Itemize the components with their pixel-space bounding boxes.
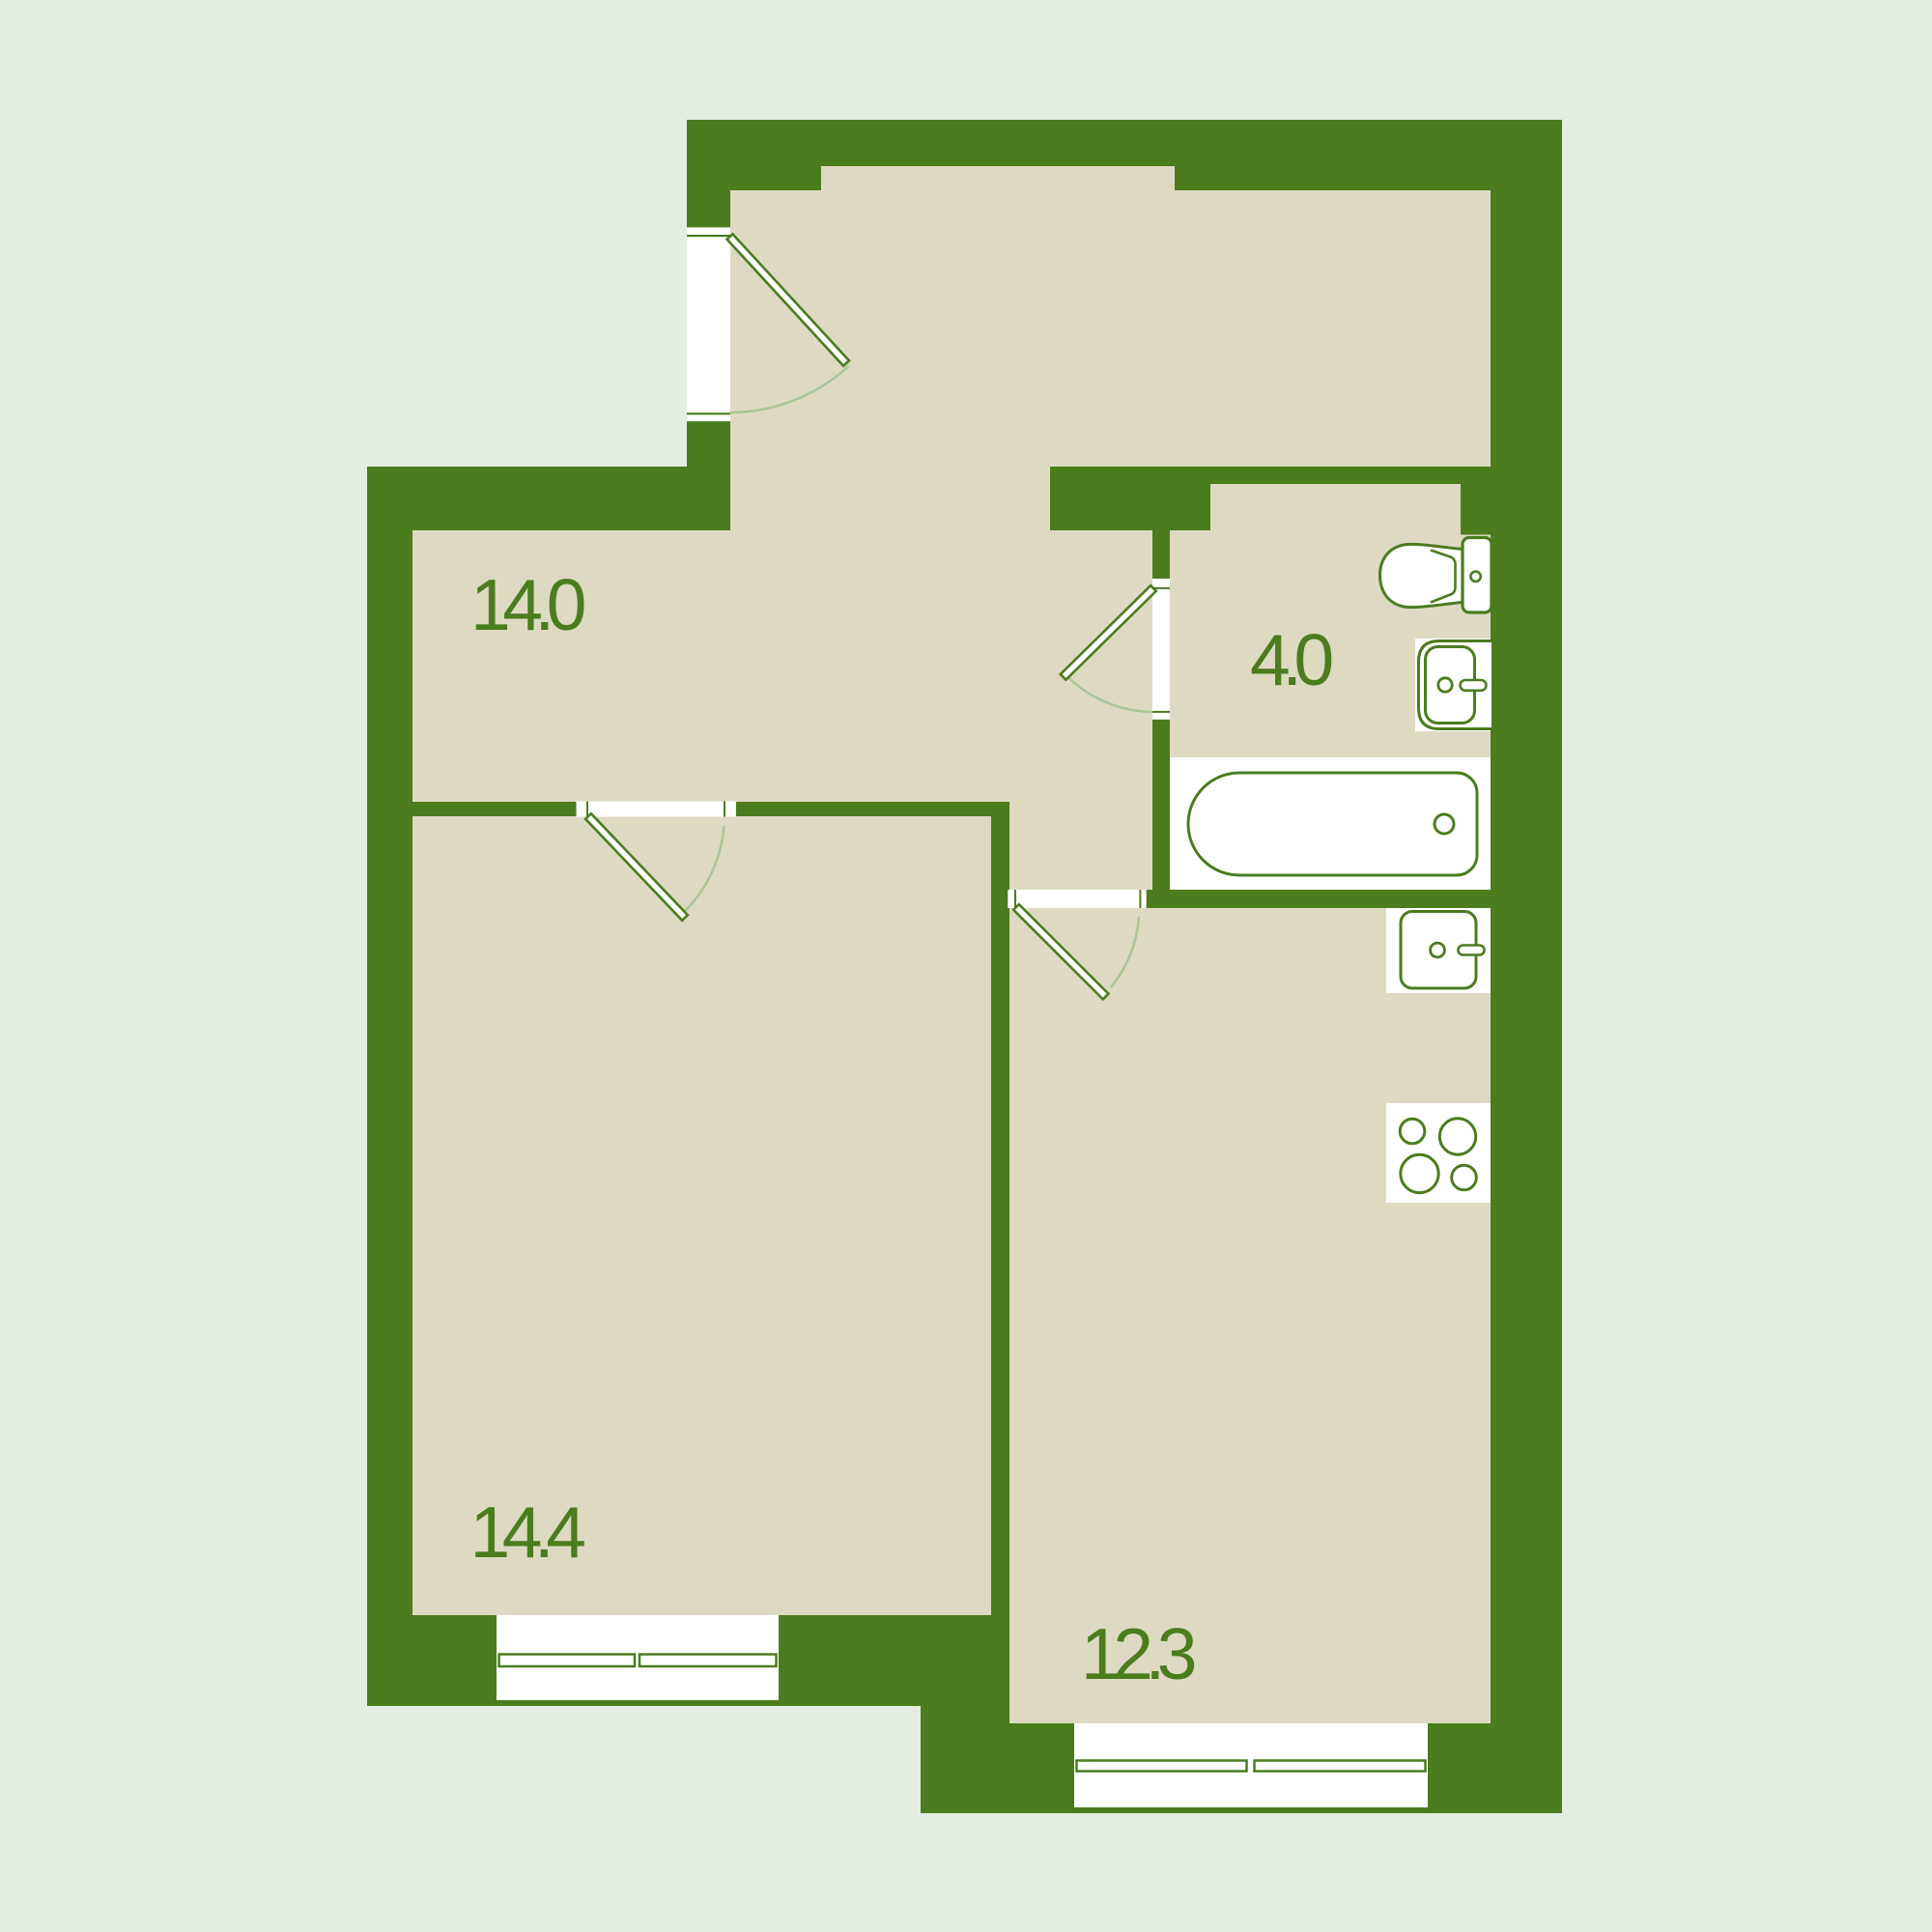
svg-text:4.0: 4.0 (1250, 619, 1332, 700)
svg-text:12.3: 12.3 (1081, 1613, 1195, 1694)
svg-text:14.0: 14.0 (470, 564, 584, 645)
svg-text:14.4: 14.4 (470, 1492, 585, 1573)
